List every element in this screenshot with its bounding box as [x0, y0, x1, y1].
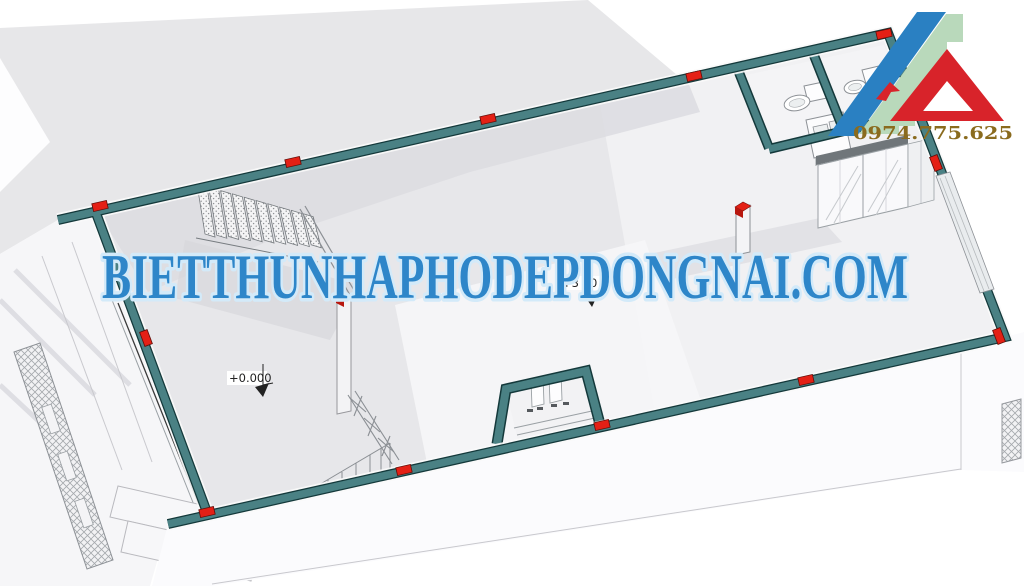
floorplan-render: +0.000 +3 0 0974.775.625 BIETTHUNHAPHODE… — [0, 0, 1024, 586]
floorplan-svg: +0.000 +3 0 0974.775.625 BIETTHUNHAPHODE… — [0, 0, 1024, 586]
level-label: +0.000 — [229, 371, 272, 385]
phone-number: 0974.775.625 — [853, 124, 1013, 144]
hatched-pier — [1002, 399, 1021, 463]
watermark-text: BIETTHUNHAPHODEPDONGNAI.COM — [102, 241, 908, 312]
